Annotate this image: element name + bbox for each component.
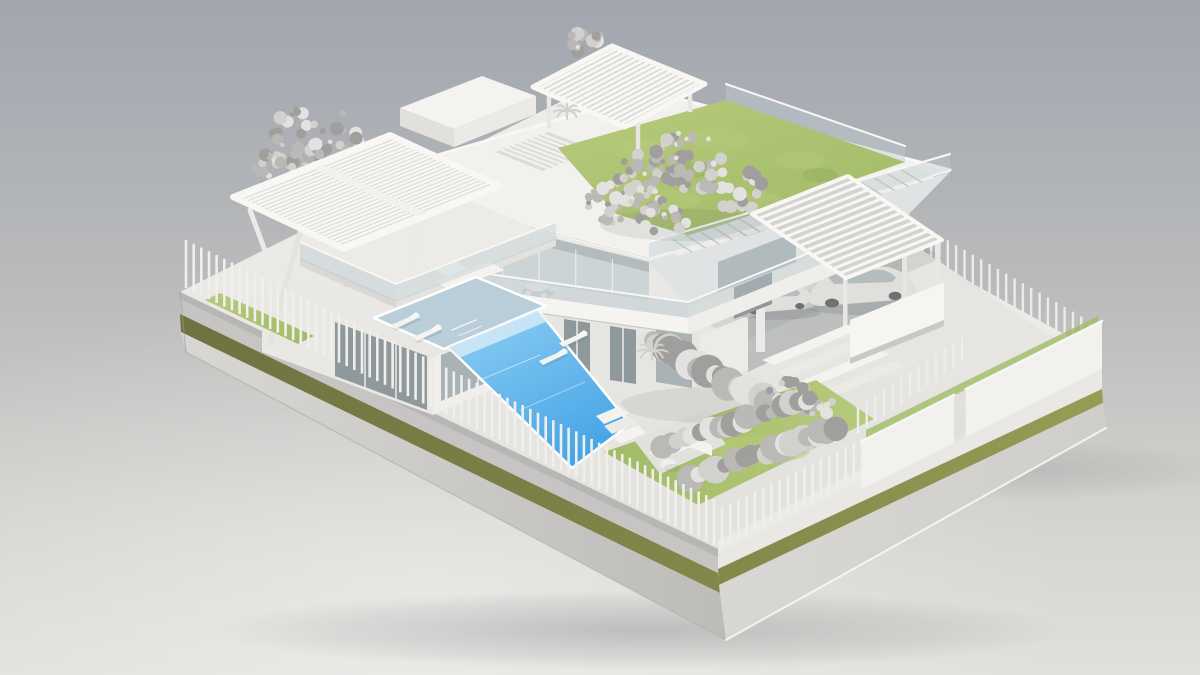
render-stage — [0, 0, 1200, 675]
villa-3d-render — [0, 0, 1200, 675]
